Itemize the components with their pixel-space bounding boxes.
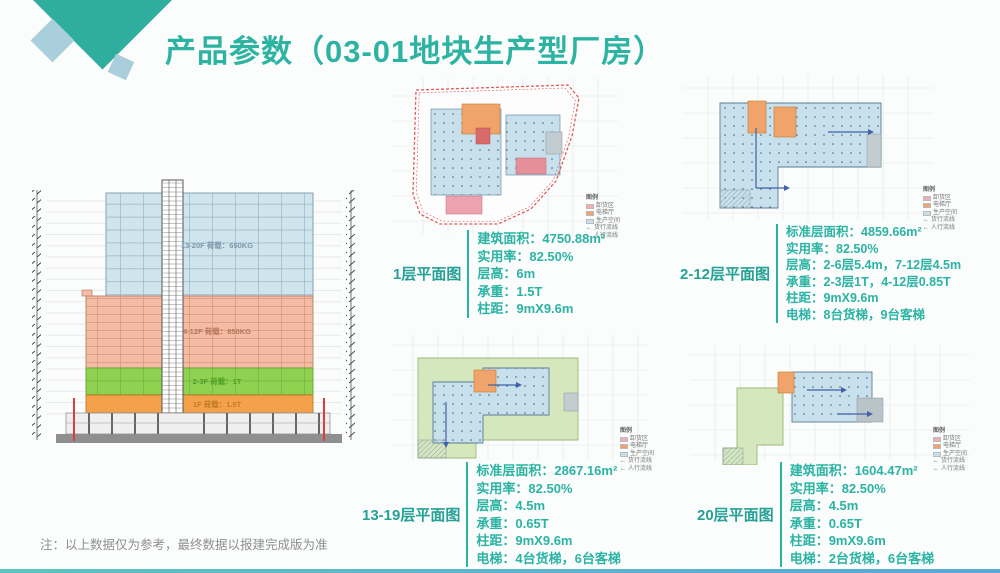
spec-row: 层高：6m (477, 265, 605, 283)
spec-label: 实用率： (477, 249, 529, 264)
plan-1f-specs: 建筑面积：4750.88m² 实用率：82.50% 层高：6m 承重：1.5T … (467, 230, 605, 318)
spec-value: 82.50% (836, 242, 878, 256)
legend-item: 电梯厅 (586, 210, 620, 218)
spec-value: 6m (516, 266, 535, 281)
legend-item: 生产空间 (923, 210, 957, 218)
legend-item: ←货行流线 (620, 458, 654, 466)
spec-row: 建筑面积：1604.47m² (790, 462, 934, 480)
legend-label: 生产空间 (630, 451, 654, 459)
spec-row: 实用率：82.50% (790, 480, 934, 498)
legend-item: 生产空间 (933, 451, 967, 459)
spec-value: 9mX9.6m (829, 533, 886, 548)
legend-chip-elevator (586, 211, 594, 216)
freight-core (867, 134, 881, 167)
spec-row: 承重：2-3层1T，4-12层0.85T (786, 274, 961, 291)
freight-core (564, 393, 578, 411)
spec-label: 层高： (477, 266, 516, 281)
legend-item: ←人行流线 (620, 466, 654, 474)
spec-label: 标准层面积： (476, 463, 554, 478)
right-dimension-line (346, 190, 355, 440)
spec-row: 实用率：82.50% (476, 480, 620, 498)
plan-13-19f-legend: 图例 卸货区 电梯厅 生产空间 ←货行流线 ←人行流线 (620, 428, 654, 473)
spec-label: 建筑面积： (477, 231, 542, 246)
spec-row: 层高：4.5m (790, 497, 934, 515)
legend-item: 卸货区 (620, 436, 654, 444)
legend-chip-unloading (620, 437, 628, 442)
spec-label: 柱距： (476, 533, 515, 548)
spec-label: 层高： (790, 498, 829, 513)
legend-label: 电梯厅 (630, 443, 648, 451)
spec-value: 8台货梯，9台客梯 (824, 308, 925, 322)
spec-row: 电梯：8台货梯，9台客梯 (786, 307, 961, 324)
spec-label: 建筑面积： (790, 463, 855, 478)
plan-2-12f-spec-group: 2-12层平面图 标准层面积：4859.66m² 实用率：82.50% 层高：2… (680, 224, 961, 323)
legend-item: 电梯厅 (620, 443, 654, 451)
legend-label: 卸货区 (630, 436, 648, 444)
floor-plan-13-19f (388, 330, 653, 465)
legend-label: 货行流线 (941, 458, 965, 466)
spec-value: 2-6层5.4m，7-12层4.5m (824, 258, 962, 272)
freight-core (857, 398, 883, 422)
spec-value: 2-3层1T，4-12层0.85T (824, 275, 951, 289)
plan-20f-legend: 图例 卸货区 电梯厅 生产空间 ←货行流线 ←人行流线 (933, 428, 967, 473)
spec-label: 承重： (477, 284, 516, 299)
spec-row: 柱距：9mX9.6m (790, 532, 934, 550)
unloading-zone-east (516, 158, 546, 174)
ground-slab (56, 434, 342, 443)
spec-value: 1.5T (516, 284, 542, 299)
legend-chip-production (586, 219, 594, 224)
plan-20f-spec-group: 20层平面图 建筑面积：1604.47m² 实用率：82.50% 层高：4.5m… (697, 462, 934, 567)
spec-row: 承重：0.65T (790, 515, 934, 533)
ramp-block (546, 132, 562, 154)
spec-row: 承重：0.65T (476, 515, 620, 533)
spec-value: 9mX9.6m (516, 301, 573, 316)
legend-chip-elevator (933, 444, 941, 449)
spec-row: 层高：4.5m (476, 497, 620, 515)
spec-row: 层高：2-6层5.4m，7-12层4.5m (786, 257, 961, 274)
load-label-1f: 1F 荷载：1.5T (193, 399, 242, 409)
legend-chip-elevator (620, 444, 628, 449)
legend-title: 图例 (620, 428, 654, 436)
legend-label: 生产空间 (933, 210, 957, 218)
spec-label: 柱距： (790, 533, 829, 548)
basement (66, 413, 330, 434)
plan-13-19f-caption: 13-19层平面图 (362, 504, 460, 525)
legend-chip-production (620, 452, 628, 457)
spec-row: 承重：1.5T (477, 283, 605, 301)
spec-row: 柱距：9mX9.6m (476, 532, 620, 550)
plan-13-19f-spec-group: 13-19层平面图 标准层面积：2867.16m² 实用率：82.50% 层高：… (362, 462, 621, 567)
spec-value: 0.65T (515, 516, 548, 531)
legend-title: 图例 (933, 428, 967, 436)
bottom-accent-bar (0, 569, 1000, 573)
plan-2-12f-specs: 标准层面积：4859.66m² 实用率：82.50% 层高：2-6层5.4m，7… (776, 224, 961, 323)
spec-value: 1604.47m² (855, 463, 918, 478)
spec-value: 82.50% (529, 249, 573, 264)
building-section-diagram: 13-20F 荷载：650KG 4-12F 荷载：850KG 2-3F 荷载：1… (28, 178, 360, 466)
load-label-4-12f: 4-12F 荷载：850KG (183, 326, 251, 336)
elevator-hall-zone (474, 370, 496, 392)
spec-row: 电梯：4台货梯，6台客梯 (476, 550, 620, 568)
spec-label: 层高： (786, 258, 824, 272)
legend-item: 卸货区 (586, 203, 620, 211)
elevator-hall-zone (778, 372, 794, 393)
legend-label: 电梯厅 (596, 210, 614, 218)
pedestrian-flow-arrow-icon: ← (620, 466, 626, 474)
legend-label: 生产空间 (943, 451, 967, 459)
legend-label: 卸货区 (943, 436, 961, 444)
legend-title: 图例 (923, 187, 957, 195)
left-dimension-line (32, 190, 41, 440)
spec-row: 建筑面积：4750.88m² (477, 230, 605, 248)
spec-row: 柱距：9mX9.6m (786, 290, 961, 307)
spec-value: 4750.88m² (542, 231, 605, 246)
spec-label: 承重： (476, 516, 515, 531)
legend-item: ←货行流线 (933, 458, 967, 466)
legend-item: 卸货区 (933, 436, 967, 444)
core-shaft (162, 180, 183, 433)
spec-label: 标准层面积： (786, 225, 861, 239)
legend-label: 电梯厅 (933, 202, 951, 210)
spec-label: 电梯： (790, 551, 829, 566)
freight-flow-arrow-icon: ← (620, 458, 626, 466)
spec-value: 4.5m (515, 498, 545, 513)
legend-label: 货行流线 (628, 458, 652, 466)
legend-chip-production (933, 452, 941, 457)
spec-row: 电梯：2台货梯，6台客梯 (790, 550, 934, 568)
legend-label: 电梯厅 (943, 443, 961, 451)
elevator-hall-east (774, 107, 796, 137)
spec-label: 实用率： (790, 481, 842, 496)
footnote: 注：以上数据仅为参考，最终数据以报建完成版为准 (40, 534, 328, 553)
legend-item: ←人行流线 (933, 466, 967, 474)
spec-value: 82.50% (528, 481, 572, 496)
legend-label: 卸货区 (596, 203, 614, 211)
plan-20f-specs: 建筑面积：1604.47m² 实用率：82.50% 层高：4.5m 承重：0.6… (780, 462, 934, 567)
parapet (82, 290, 92, 296)
spec-row: 标准层面积：2867.16m² (476, 462, 620, 480)
load-label-13-20f: 13-20F 荷载：650KG (181, 240, 253, 250)
floor-plan-20f (685, 340, 975, 465)
plan-1f-spec-group: 1层平面图 建筑面积：4750.88m² 实用率：82.50% 层高：6m 承重… (393, 230, 605, 318)
spec-value: 82.50% (842, 481, 886, 496)
plan-1f-caption: 1层平面图 (393, 263, 461, 284)
legend-item: 生产空间 (586, 218, 620, 226)
page-title: 产品参数（03-01地块生产型厂房） (165, 26, 665, 71)
legend-label: 卸货区 (933, 195, 951, 203)
spec-label: 实用率： (786, 242, 836, 256)
spec-value: 2867.16m² (554, 463, 617, 478)
unloading-zone-south (446, 196, 482, 214)
spec-row: 实用率：82.50% (786, 241, 961, 258)
spec-label: 实用率： (476, 481, 528, 496)
service-block (720, 190, 750, 208)
plan-13-19f-specs: 标准层面积：2867.16m² 实用率：82.50% 层高：4.5m 承重：0.… (466, 462, 620, 567)
spec-value: 4台货梯，6台客梯 (515, 551, 620, 566)
spec-value: 4859.66m² (861, 225, 921, 239)
legend-label: 人行流线 (628, 466, 652, 474)
spec-value: 4.5m (829, 498, 859, 513)
service-block (418, 440, 446, 458)
plan-2-12f-caption: 2-12层平面图 (680, 263, 770, 284)
spec-label: 柱距： (786, 291, 824, 305)
legend-item: 卸货区 (923, 195, 957, 203)
spec-value: 0.65T (829, 516, 862, 531)
spec-row: 标准层面积：4859.66m² (786, 224, 961, 241)
lobby-core (476, 128, 490, 144)
legend-chip-elevator (923, 203, 931, 208)
legend-chip-unloading (923, 196, 931, 201)
plan-20f-caption: 20层平面图 (697, 504, 774, 525)
legend-label: 生产空间 (596, 218, 620, 226)
spec-row: 实用率：82.50% (477, 248, 605, 266)
load-label-2-3f: 2-3F 荷载：1T (193, 376, 242, 386)
spec-label: 柱距： (477, 301, 516, 316)
spec-label: 层高： (476, 498, 515, 513)
legend-item: 电梯厅 (923, 202, 957, 210)
spec-label: 电梯： (476, 551, 515, 566)
spec-value: 9mX9.6m (824, 291, 879, 305)
floor-plan-2-12f (678, 70, 938, 228)
spec-value: 9mX9.6m (515, 533, 572, 548)
legend-item: 电梯厅 (933, 443, 967, 451)
spec-label: 承重： (790, 516, 829, 531)
legend-label: 人行流线 (941, 466, 965, 474)
spec-label: 承重： (786, 275, 824, 289)
spec-label: 电梯： (786, 308, 824, 322)
spec-value: 2台货梯，6台客梯 (829, 551, 934, 566)
legend-title: 图例 (586, 195, 620, 203)
legend-chip-unloading (586, 204, 594, 209)
elevator-hall-west (748, 101, 766, 133)
legend-chip-production (923, 211, 931, 216)
legend-chip-unloading (933, 437, 941, 442)
spec-row: 柱距：9mX9.6m (477, 300, 605, 318)
legend-item: 生产空间 (620, 451, 654, 459)
